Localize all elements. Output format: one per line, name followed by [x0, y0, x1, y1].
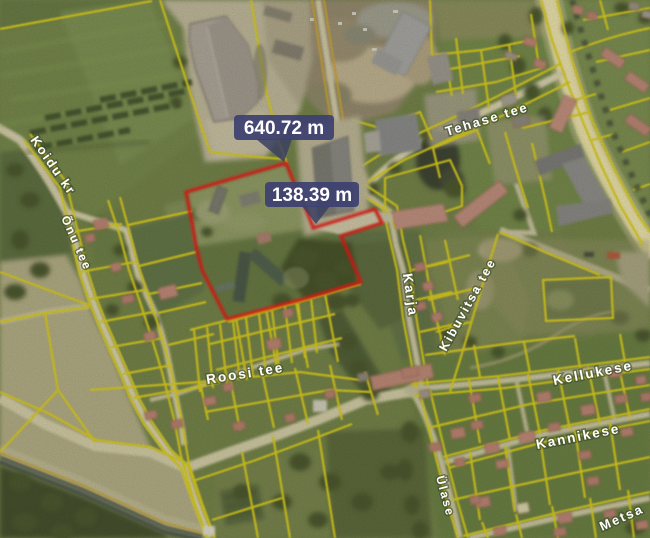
svg-text:138.39 m: 138.39 m [272, 185, 352, 206]
svg-text:640.72 m: 640.72 m [244, 118, 324, 139]
